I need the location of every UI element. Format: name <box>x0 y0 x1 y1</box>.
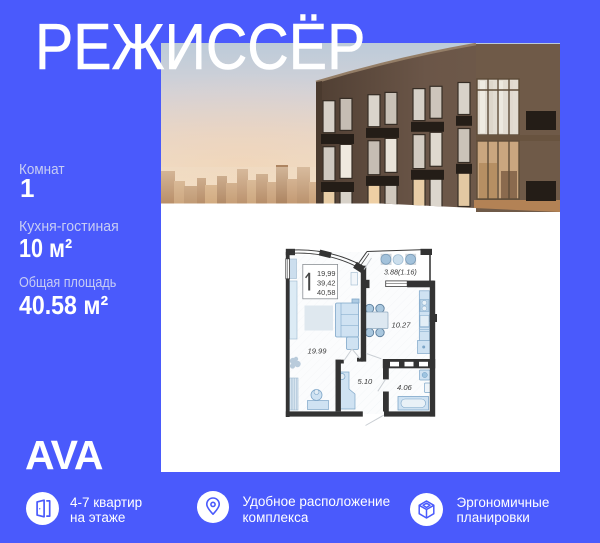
svg-text:40,58: 40,58 <box>317 288 336 297</box>
svg-text:4.06: 4.06 <box>397 383 413 392</box>
svg-text:39,42: 39,42 <box>317 279 336 288</box>
svg-text:19.99: 19.99 <box>308 347 328 356</box>
svg-text:10.27: 10.27 <box>392 321 412 330</box>
svg-text:5.10: 5.10 <box>358 377 374 386</box>
svg-text:3.88(1.16): 3.88(1.16) <box>384 267 417 276</box>
svg-text:19,99: 19,99 <box>317 269 336 278</box>
